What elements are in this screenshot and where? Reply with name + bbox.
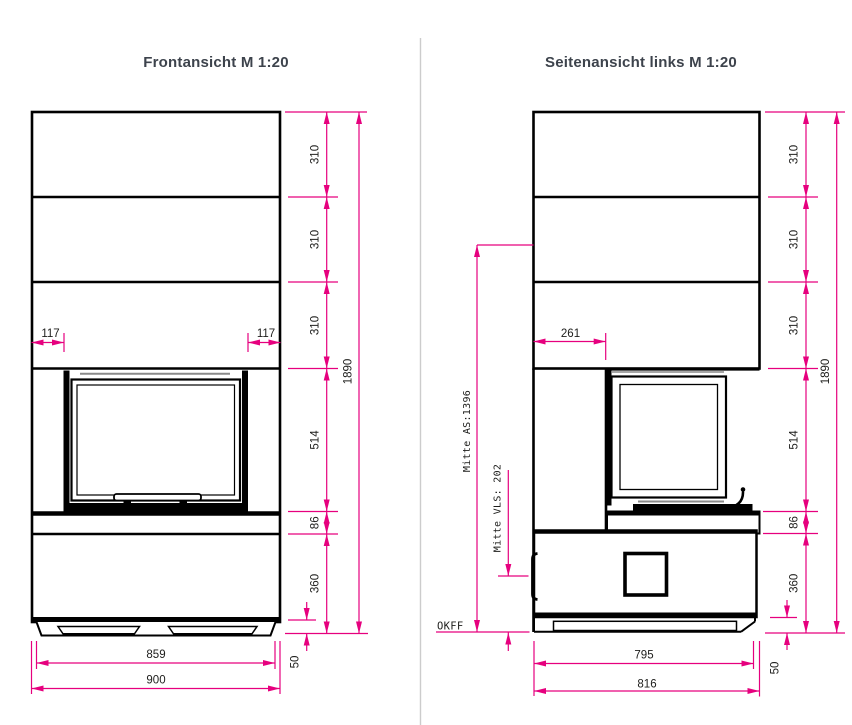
front-chain-dim-6: 360 bbox=[310, 574, 322, 593]
front-outer-width-dim: 900 bbox=[146, 675, 165, 687]
side-chain-dim-5: 86 bbox=[789, 516, 801, 529]
side-overall-height-dim: 1890 bbox=[820, 359, 832, 385]
front-chain-dim-3: 310 bbox=[310, 316, 322, 335]
front-plinth bbox=[37, 622, 276, 636]
front-inner-width-dim: 859 bbox=[146, 649, 165, 661]
side-chain-dim-2: 310 bbox=[789, 230, 801, 249]
side-chain-dim-1: 310 bbox=[789, 145, 801, 164]
side-outer-depth-dim: 816 bbox=[637, 679, 656, 691]
front-left-offset-dim: 117 bbox=[41, 328, 59, 340]
side-top-depth-dim: 261 bbox=[561, 328, 580, 340]
front-chain-dim-4: 514 bbox=[310, 430, 322, 450]
side-floor-label: OKFF bbox=[437, 621, 464, 633]
technical-drawing: 310 310 310 514 86 360 1890 50 117 117 8… bbox=[0, 0, 852, 725]
front-chain-dim-2: 310 bbox=[310, 230, 322, 249]
side-air-center-label: Mitte VLS: 202 bbox=[493, 464, 504, 553]
front-view-drawing bbox=[32, 112, 280, 636]
side-firebox-door bbox=[606, 369, 760, 512]
front-chain-dim-1: 310 bbox=[310, 145, 322, 164]
side-view-drawing bbox=[533, 112, 760, 632]
side-plinth bbox=[534, 617, 755, 632]
side-chain-dim-4: 514 bbox=[789, 430, 801, 450]
side-plinth-height-dim: 50 bbox=[770, 662, 782, 675]
front-right-offset-dim: 117 bbox=[257, 328, 275, 340]
front-firebox-door bbox=[64, 371, 249, 512]
side-base bbox=[533, 531, 757, 618]
side-base-opening bbox=[625, 554, 667, 596]
front-chain-dim-5: 86 bbox=[310, 516, 322, 529]
front-plinth-height-dim: 50 bbox=[290, 656, 302, 669]
side-chain-dim-6: 360 bbox=[789, 574, 801, 593]
drawing-page: { "page": { "background": "#ffffff", "di… bbox=[0, 0, 852, 725]
side-flue-center-label: Mitte AS:1396 bbox=[462, 390, 473, 472]
side-inner-depth-dim: 795 bbox=[634, 650, 653, 662]
side-chain-dim-3: 310 bbox=[789, 316, 801, 335]
front-overall-height-dim: 1890 bbox=[343, 359, 355, 385]
